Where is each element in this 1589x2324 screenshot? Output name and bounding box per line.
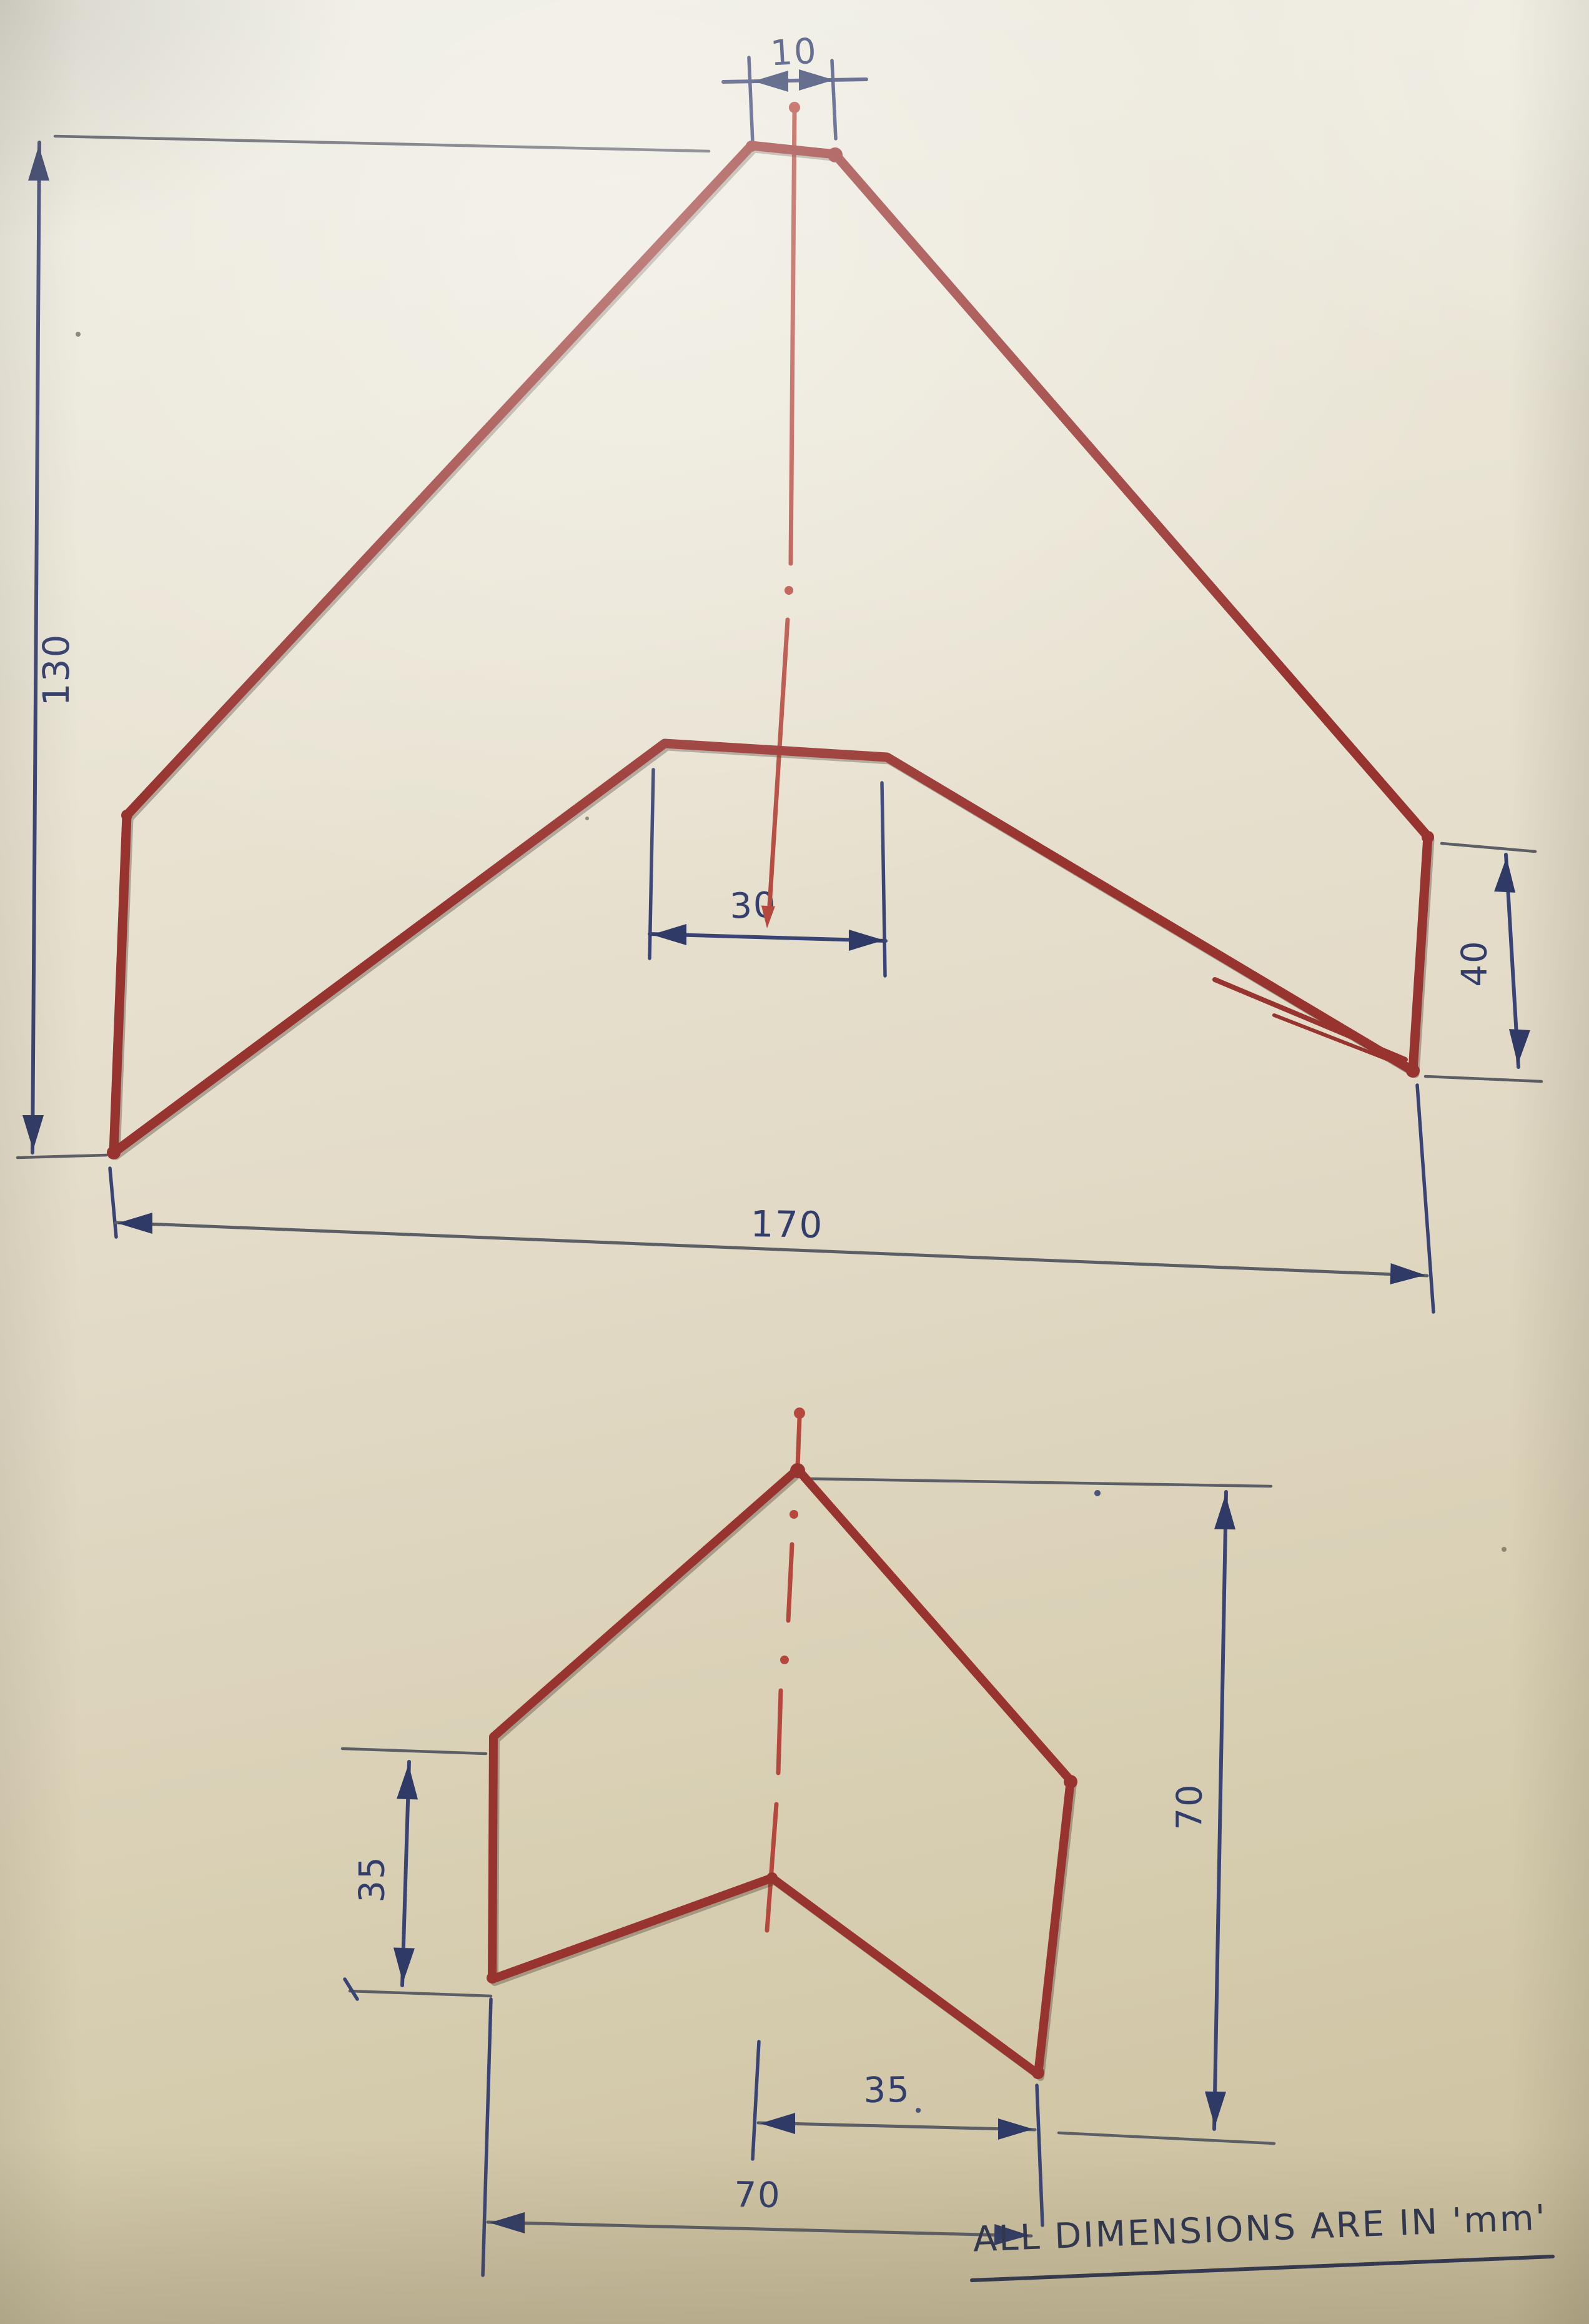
extension-line [342,1749,486,1754]
centerline-segment [767,1804,776,1930]
paper-speck [916,2108,921,2113]
dimension-arrowhead [28,146,49,181]
paper-photo: 101303040170 35703570 ALL DIMENSIONS ARE… [0,0,1589,2324]
extension-line [832,61,836,139]
ink-blob [746,141,757,152]
paper-speck [76,332,81,337]
ink-blob [1064,1775,1077,1789]
centerline-dot [790,1510,798,1519]
ink-blob [790,1463,805,1478]
ink-correction-stroke [1215,980,1405,1060]
dimension-line [1214,1492,1226,2129]
dim-label-front-view-2: 35 [863,2070,911,2111]
dim-label-plan-view-1: 130 [35,633,77,707]
shape-outline [114,146,1428,1153]
ink-blob [1032,2067,1044,2079]
ink-blob [107,1146,121,1160]
ink-blob [1406,1064,1420,1078]
dimension-arrowhead [1214,1494,1235,1529]
dimension-arrowhead [1509,1029,1530,1065]
dimension-arrowhead [799,69,834,91]
dim-label-front-view-3: 70 [734,2175,781,2216]
extension-line [650,770,653,958]
dim-label-front-view-1: 70 [1170,1783,1210,1830]
centerline-dot [780,1656,789,1664]
dimension-arrowhead [760,2113,795,2134]
dimension-arrowhead [394,1947,415,1983]
dimension-arrowhead [1494,857,1515,893]
extension-line [483,1999,491,2275]
dimension-arrowhead [397,1764,418,1800]
extension-line [350,1991,491,1996]
extension-line [17,1155,106,1158]
centerline-segment [791,111,794,564]
dim-label-front-view-0: 35 [352,1855,393,1902]
ink-blob [1422,831,1434,843]
extension-line [1417,1085,1433,1312]
paper-speck [1502,1547,1507,1552]
ink-blob [487,1972,498,1984]
drawing-canvas: 101303040170 35703570 ALL DIMENSIONS ARE… [0,0,1589,2324]
extension-line [1059,2133,1274,2143]
extension-line [55,136,709,151]
ink-blob [828,147,843,162]
dimension-arrowhead [1205,2092,1226,2127]
dimension-arrowhead [849,930,884,951]
ink-blob [121,810,132,821]
shape-outline [492,1469,1071,2074]
centerline-segment [788,1544,792,1621]
extension-line [1037,2085,1042,2225]
centerline-segment [778,1691,781,1773]
centerline-blob [794,1408,805,1419]
extension-line [345,1979,357,1999]
paper-speck [1094,1490,1101,1496]
dim-label-plan-view-0: 10 [770,31,819,74]
units-note: ALL DIMENSIONS ARE IN 'mm' [973,2197,1548,2260]
shape-outline-shadow [495,1472,1073,2077]
dimension-line [488,2222,1031,2236]
dimension-arrowhead [998,2118,1033,2140]
dimension-arrowhead [117,1213,152,1234]
extension-line [1442,843,1535,852]
centerline-segment [798,1418,799,1467]
paper-speck [585,817,589,820]
dim-label-plan-view-3: 40 [1455,940,1495,986]
extension-line [882,783,885,976]
ink-blob [766,1872,778,1884]
centerline-dot [785,586,793,595]
dimension-arrowhead [753,71,788,92]
annotation: ALL DIMENSIONS ARE IN 'mm' [972,2197,1553,2280]
dimension-arrowhead [1390,1263,1425,1284]
centerline-segment [769,620,788,916]
extension-line [749,57,753,142]
extension-line [1425,1076,1542,1081]
note-underline [972,2257,1553,2280]
dimension-line [758,2123,1035,2130]
centerline-blob [789,102,800,113]
plan-view: 101303040170 [17,31,1542,1312]
extension-line [110,1168,116,1237]
extension-line [811,1479,1271,1486]
dimension-line [723,79,866,82]
dim-label-plan-view-4: 170 [750,1203,824,1246]
dimension-arrowhead [651,924,686,945]
dimension-arrowhead [490,2212,525,2233]
extension-line [753,2042,759,2159]
dimension-arrowhead [22,1115,44,1150]
front-view: 35703570 [342,1408,1274,2275]
